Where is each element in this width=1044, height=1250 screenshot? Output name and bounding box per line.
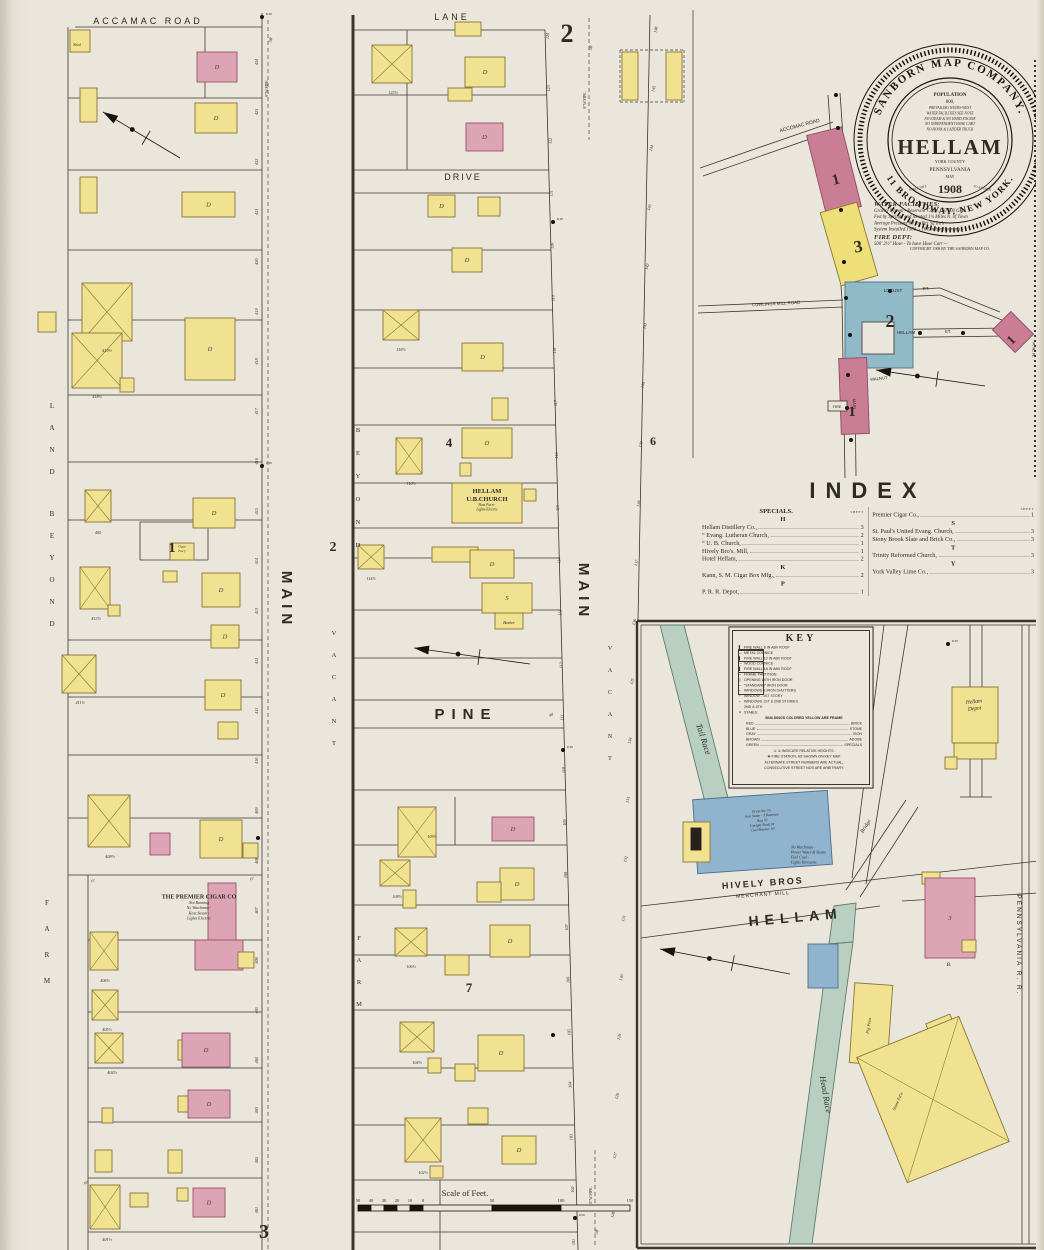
building: D <box>200 820 242 858</box>
map-label: ACCOMAC ROAD <box>779 118 821 135</box>
index-section-letter: Y <box>872 560 1034 568</box>
lot-number: 146 <box>652 25 659 33</box>
seal-note: WATER FACILITIES SEE NOTE <box>926 111 974 115</box>
hydrant-dot <box>834 93 838 97</box>
map-label: 50' <box>267 36 273 43</box>
map-label: Barber <box>503 620 515 625</box>
map-label: LANE <box>434 12 470 22</box>
building-outline <box>455 1064 475 1081</box>
seal-population: POPULATION <box>934 93 967 98</box>
index-entry: Hotel Hellam,2 <box>702 555 864 563</box>
index-title: INDEX <box>698 478 1038 504</box>
building: D <box>462 428 512 458</box>
building <box>238 952 254 968</box>
lot-number: 410 <box>254 757 259 764</box>
map-label: LAND <box>49 402 54 476</box>
map-label: HELLAM <box>897 330 916 335</box>
map-label: 405½ <box>102 1027 112 1032</box>
building <box>130 1193 148 1207</box>
lot-number: 414 <box>254 558 259 564</box>
building-outline <box>120 378 134 392</box>
lot-number: 101 <box>571 1239 576 1245</box>
building: D <box>211 625 239 648</box>
key-color-leader <box>755 724 849 725</box>
building <box>396 438 422 474</box>
index-entry-page: 2 <box>861 531 864 539</box>
index-entry: Hellam Distillery Co.,3 <box>702 523 864 531</box>
building-outline <box>80 88 97 122</box>
lot-number: 406 <box>254 956 259 963</box>
map-label: 15' <box>90 879 96 884</box>
sanborn-sheet: { "seal":{ "cx":950,"cy":140, "ring_top"… <box>0 0 1044 1250</box>
building-use-label: D <box>220 692 226 699</box>
map-label: 104½ <box>412 1060 422 1065</box>
map-label: COWLINGS MILL ROAD <box>752 300 801 308</box>
map-label: 109½ <box>427 834 437 839</box>
building-outline <box>691 828 701 850</box>
building-use-label: D <box>218 587 224 594</box>
building-outline <box>95 1150 112 1172</box>
note-church: HELLAMU.B.CHURCHHeat Furn -Lights Electr… <box>452 487 522 538</box>
north-arrow <box>414 646 530 665</box>
index-entry-leader <box>741 593 860 594</box>
building: D <box>185 318 235 380</box>
key-row-text: STABLE <box>744 710 758 715</box>
north-arrow <box>660 947 790 974</box>
building <box>445 955 469 975</box>
note-cigar_facy: CigarFac'y <box>168 545 196 563</box>
building-use-label: D <box>464 257 470 264</box>
index-entry-leader <box>750 552 859 553</box>
scale-bar-segment <box>397 1205 410 1211</box>
map-label: 408½ <box>105 854 115 859</box>
building <box>95 1033 123 1063</box>
index-column-left: SPECIALS. SHEET HHellam Distillery Co.,3… <box>698 507 868 596</box>
map-label: 110½ <box>406 481 416 486</box>
building-outline <box>163 571 177 582</box>
lot-number: 405 <box>254 1007 259 1013</box>
building <box>358 545 384 569</box>
map-label: 102½ <box>418 1170 428 1175</box>
index-entry-page: 1 <box>861 539 864 547</box>
building: D <box>182 1033 230 1067</box>
building-use-label: D <box>514 881 520 888</box>
building: D <box>182 192 235 217</box>
building <box>477 882 501 902</box>
hydrant-dot <box>846 373 850 377</box>
map-label: 419½ <box>102 348 112 353</box>
building <box>455 22 481 36</box>
building-outline <box>460 463 471 476</box>
lot-number: 411 <box>254 708 259 714</box>
building-outline <box>524 489 536 501</box>
street-line <box>846 800 906 890</box>
note-mill_note-line: Lights Kerosene. <box>791 860 853 865</box>
map-label: WALNUT <box>870 375 888 382</box>
building <box>72 333 122 388</box>
scale-bar-number: 30 <box>382 1198 387 1203</box>
map-label: BEYOND <box>49 510 54 628</box>
building-use-label: D <box>516 1147 522 1154</box>
building: D <box>466 123 503 151</box>
building: D <box>500 868 534 900</box>
key-rows: ▌FIRE WALL 6 IN ABV ROOF—METAL CORNICE▌F… <box>733 644 875 772</box>
index-entry-leader <box>739 560 860 561</box>
index-entry-page: 3 <box>1031 552 1034 560</box>
index-section-letter: P <box>702 580 864 588</box>
map-label: ST. <box>945 329 952 334</box>
index-entry: York Valley Lime Co.,3 <box>872 568 1034 576</box>
hydrant-dot <box>961 331 965 335</box>
index-entry-name: Hively Bro's. Mill, <box>702 547 749 555</box>
hydrant-dot <box>836 126 840 130</box>
note-cigar_facy-inner: CigarFac'y <box>168 545 196 554</box>
building <box>945 757 957 769</box>
building-use-label: D <box>498 1050 504 1057</box>
map-label: Bridge <box>860 818 873 834</box>
index-entry: “ U. B. Church,1 <box>702 539 864 547</box>
note-church-inner: HELLAMU.B.CHURCHHeat Furn -Lights Electr… <box>452 487 522 512</box>
index-entry-leader <box>776 577 859 578</box>
lot-number: 137 <box>633 558 640 566</box>
building-use-label: D <box>206 1101 212 1108</box>
building <box>82 283 132 341</box>
lot-number: 124 <box>545 33 550 39</box>
lot-number: 115 <box>555 505 560 511</box>
building-outline <box>130 1193 148 1207</box>
hydrant-dot <box>844 296 848 300</box>
building-outline <box>428 1058 441 1073</box>
building-outline <box>468 1108 488 1124</box>
building-outline <box>38 312 56 332</box>
hydrant-dot <box>918 331 922 335</box>
building <box>38 312 56 332</box>
lot-number: 109 <box>562 818 567 825</box>
building <box>108 605 120 616</box>
key-color-name: GREEN <box>746 743 759 748</box>
key-symbol: ✕ <box>736 710 744 715</box>
index-entry-page: 1 <box>861 547 864 555</box>
key-footer-line: CONSECUTIVE STREET NOS ARE ARBITRARY. <box>736 765 872 771</box>
building-outline <box>238 952 254 968</box>
hydrant-dot <box>849 438 853 442</box>
map-label: 114½ <box>366 576 376 581</box>
index-entry-name: “ Evang. Lutheran Church, <box>702 531 769 539</box>
seal-county: YORK COUNTY <box>935 159 965 164</box>
lot-number: 422 <box>254 159 259 165</box>
hydrant-dot <box>573 1216 577 1220</box>
street-line <box>545 30 578 1250</box>
map-label: MAIN <box>278 571 295 629</box>
index-entry-name: “ U. B. Church, <box>702 539 741 547</box>
building-use-label: D <box>218 836 224 843</box>
building-outline <box>477 882 501 902</box>
seal-note: NO HOOK & LADDER TRUCK <box>926 128 975 132</box>
lot-number: 116 <box>554 452 559 459</box>
hydrant-dot <box>842 260 846 264</box>
index-entry-leader <box>742 544 859 545</box>
map-label: 123½ <box>388 90 398 95</box>
key-color-value: SPECIALS <box>844 743 862 748</box>
index-entry-name: Trinity Reformed Church, <box>872 552 937 560</box>
building: D <box>195 103 237 133</box>
building: D <box>478 1035 524 1071</box>
map-label: 401½ <box>102 1237 112 1242</box>
index-entry-name: St. Paul's United Evang. Church, <box>872 527 953 535</box>
building-outline <box>108 605 120 616</box>
lot-number: 403 <box>254 1107 259 1113</box>
map-label: 405 <box>95 530 101 535</box>
building <box>372 45 412 83</box>
building <box>88 795 130 847</box>
scale-bar-segment <box>423 1205 492 1211</box>
scale-bar-number: 20 <box>395 1198 400 1203</box>
building-outline <box>102 1108 113 1123</box>
building <box>90 1185 120 1229</box>
building: D <box>452 248 482 272</box>
building-outline <box>945 757 957 769</box>
lot-number: 141 <box>642 322 648 329</box>
building <box>954 743 996 759</box>
building-outline <box>448 88 472 101</box>
building <box>163 571 177 582</box>
key-color-leader <box>757 735 851 736</box>
index-entry-name: P. R. R. Depot, <box>702 588 739 596</box>
lot-number: 117 <box>553 399 558 406</box>
map-label: MAIN <box>575 563 592 621</box>
building: S <box>482 583 532 613</box>
building: D <box>465 57 505 87</box>
map-label: 40' <box>548 711 555 718</box>
index-entry-name: Premier Cigar Co., <box>872 511 919 519</box>
scale-bar-number: 100 <box>558 1198 566 1203</box>
lot-number: 120 <box>550 242 555 249</box>
building-outline <box>243 843 258 858</box>
lot-number: 130 <box>618 973 625 981</box>
building-outline <box>168 1150 182 1173</box>
lot-number: 104 <box>568 1082 573 1088</box>
lot-number: 103 <box>569 1134 574 1140</box>
index-entry: St. Paul's United Evang. Church,3 <box>872 527 1034 535</box>
lot-number: 114 <box>556 557 561 563</box>
lot-number: 105 <box>566 1029 571 1035</box>
lot-number: 106 <box>565 976 570 983</box>
hydrant-label: D.H. <box>556 217 564 221</box>
index-entry-name: York Valley Lime Co., <box>872 568 928 576</box>
north-arrow-dot <box>130 127 135 132</box>
water-facilities-title: WATER FACILITIES: <box>874 200 1044 208</box>
street-line <box>698 307 843 313</box>
north-arrow <box>103 112 180 158</box>
index-section-letter: T <box>872 543 1034 551</box>
map-label: 2 <box>886 311 895 331</box>
seal-month: MAY <box>946 174 955 179</box>
map-label: 6"W.PIPE. <box>582 91 587 108</box>
lot-number: 423 <box>254 109 259 115</box>
hydrant-label: D.H. <box>578 1213 586 1217</box>
building-outline <box>445 955 469 975</box>
map-label: 118½ <box>396 347 406 352</box>
index-section-letter: S <box>872 519 1034 527</box>
building <box>400 1022 434 1052</box>
map-label: 4 <box>446 435 453 450</box>
building-use-label: D <box>507 938 513 945</box>
map-label: 108½ <box>392 894 402 899</box>
keymap-section-1-south <box>839 358 870 435</box>
index-entry-name: Hotel Hellam, <box>702 555 737 563</box>
building-outline <box>478 197 500 216</box>
map-label: MERCHANT MILL <box>736 890 790 900</box>
north-arrow-head <box>414 646 429 655</box>
map-label: BEYOND <box>356 427 361 549</box>
lot-number: 133 <box>624 796 630 803</box>
building-outline <box>666 52 682 100</box>
index-entry-page: 2 <box>861 572 864 580</box>
building-use-label: D <box>203 1047 209 1054</box>
water-facilities-note: WATER FACILITIES: Gravity System - Reser… <box>874 200 1044 294</box>
building <box>92 990 118 1020</box>
building <box>120 378 134 392</box>
seal-population-value: 800, <box>946 100 955 105</box>
index-specials-header: SPECIALS. <box>702 507 850 515</box>
building-outline <box>70 30 90 52</box>
key-title: KEY <box>733 633 869 644</box>
index-entry-leader <box>938 557 1029 558</box>
scale-bar-number: 40 <box>369 1198 374 1203</box>
lot-number: 402 <box>254 1157 259 1163</box>
note-mill_note: No Watchman -Power Water & SteamFuel Coa… <box>791 845 853 886</box>
index-entry-leader <box>955 532 1029 533</box>
building <box>403 890 416 908</box>
lot-number: 420 <box>254 258 259 265</box>
map-label: P. R. R. <box>1031 342 1036 357</box>
building <box>448 88 472 101</box>
index-entry-page: 3 <box>1031 535 1034 543</box>
note-church-title: HELLAM <box>452 487 522 495</box>
map-label: 404½ <box>107 1070 117 1075</box>
keymap-section-3 <box>820 202 877 286</box>
fire-dept-lines: 500' 2½" Hose - To have Hose Cart — <box>874 241 1044 247</box>
map-label: 7 <box>466 980 473 995</box>
lot-number: 108 <box>563 871 568 878</box>
map-label: PENNSYLVANIA R. R. <box>1015 894 1022 995</box>
building-use-label: D <box>206 1200 212 1207</box>
scale-bar <box>358 1205 630 1211</box>
building <box>468 1108 488 1124</box>
index-entry-leader <box>957 540 1030 541</box>
building-outline <box>492 398 508 420</box>
scale-bar-number: 50 <box>356 1198 361 1203</box>
lot-number: 123 <box>546 85 551 91</box>
index-entry: Trinity Reformed Church,3 <box>872 552 1034 560</box>
index-entry-page: 3 <box>861 523 864 531</box>
map-label: 50' <box>587 44 593 51</box>
map-label: 3 <box>259 1221 269 1243</box>
map-label: VACANT <box>332 630 337 747</box>
building <box>524 489 536 501</box>
index-entry-page: 3 <box>1031 527 1034 535</box>
lot-number: 127 <box>611 1151 618 1159</box>
north-arrow-dot <box>915 374 920 379</box>
hydrant-dot <box>839 208 843 212</box>
seal-scale-right: TO AN INCH <box>973 184 992 192</box>
note-church-line: Lights Electric <box>452 508 522 513</box>
lot-number: 111 <box>560 715 565 721</box>
building <box>150 833 170 855</box>
keymap-section-1-south-outline <box>839 358 870 435</box>
lot-number: 119 <box>551 294 556 301</box>
hydrant-dot <box>260 15 264 19</box>
lot-number: 112 <box>559 662 564 668</box>
north-arrow-line <box>876 370 985 386</box>
building: D <box>470 550 514 578</box>
lot-number: 412 <box>254 658 259 664</box>
lot-number: 138 <box>635 499 642 507</box>
note-cigar_facy-line: Fac'y <box>168 549 196 553</box>
building <box>243 843 258 858</box>
index-entry: “ Evang. Lutheran Church,2 <box>702 531 864 539</box>
building <box>80 88 97 122</box>
scale-bar-number: 0 <box>422 1198 425 1203</box>
building <box>70 30 90 52</box>
seal-note: PREVAILING WINDS-WEST <box>928 106 972 110</box>
index-entry-leader <box>770 536 859 537</box>
building-use-label: D <box>482 69 488 76</box>
scale-bar-segment <box>561 1205 630 1211</box>
scale-bar-number: 50 <box>490 1198 495 1203</box>
lot-number: 122 <box>547 138 552 144</box>
lot-number: 142 <box>644 263 650 270</box>
fire-dept-title: FIRE DEPT: <box>874 233 1044 241</box>
hydrant-dot <box>260 464 264 468</box>
map-label: PINE <box>434 706 497 723</box>
building <box>666 52 682 100</box>
seal-scale-left: SCALE 50FT. <box>908 184 927 192</box>
map-label: ACCAMAC ROAD <box>93 16 203 26</box>
seal-note: NO STEAM & NO HAND ENGINE <box>923 117 976 121</box>
building: D <box>462 343 503 371</box>
building <box>90 932 118 970</box>
building-outline <box>808 944 838 988</box>
map-label: 2 <box>330 540 337 555</box>
building <box>691 828 701 850</box>
map-label: 6 <box>650 434 656 448</box>
lot-number: 132 <box>622 855 628 862</box>
north-arrow <box>876 368 985 387</box>
building-outline <box>962 940 976 952</box>
building <box>80 177 97 213</box>
map-label: HELLAM <box>748 905 843 929</box>
note-mill_note-inner: No Watchman -Power Water & SteamFuel Coa… <box>791 845 853 865</box>
lot-number: 408 <box>254 857 259 864</box>
map-label: 15' <box>249 877 255 882</box>
lot-number: 419 <box>254 308 259 315</box>
building-outline <box>150 833 170 855</box>
north-arrow-dot <box>456 652 461 657</box>
building: D <box>188 1090 230 1118</box>
building-use-label: D <box>510 826 516 833</box>
lot-number: 121 <box>548 190 553 196</box>
note-premier-title: THE PREMIER CIGAR CO <box>146 893 252 901</box>
map-label: Scale of Feet. <box>442 1188 489 1198</box>
building <box>80 567 110 609</box>
north-arrow-dot <box>707 956 712 961</box>
building <box>492 398 508 420</box>
hydrant-dot <box>256 836 260 840</box>
map-label: 6"W.PIPE. <box>264 79 269 96</box>
building: D <box>502 1136 536 1164</box>
map-label: 2 <box>561 19 574 48</box>
